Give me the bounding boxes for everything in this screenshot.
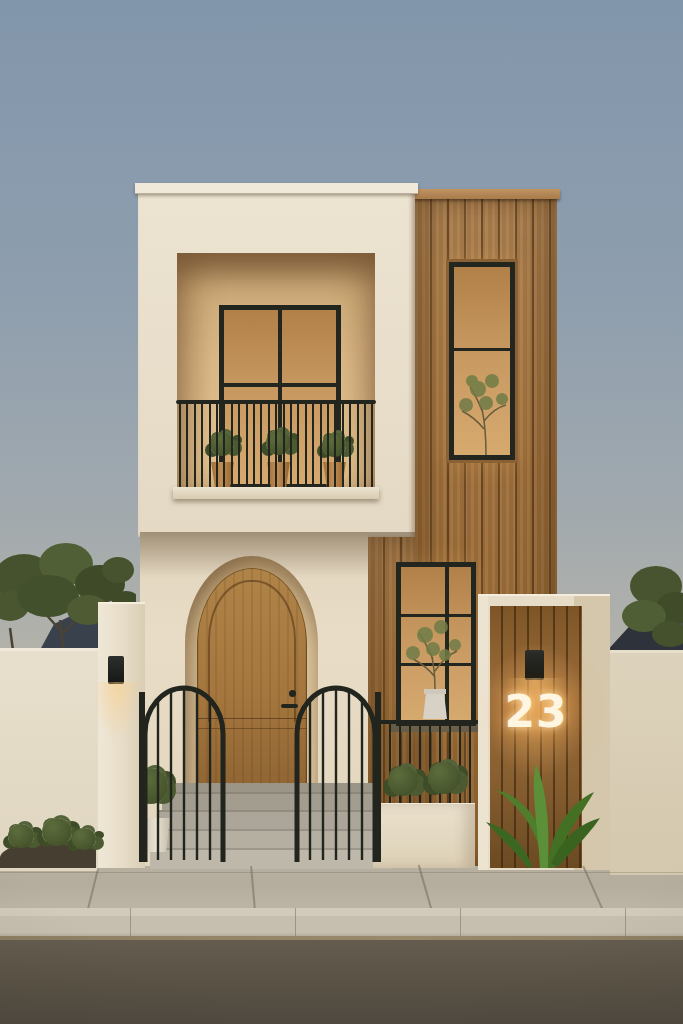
ground-window <box>396 562 476 726</box>
planter-shrub <box>428 762 460 794</box>
curb <box>0 908 683 938</box>
gate-right-bars <box>310 687 362 860</box>
bed-shrub <box>42 818 72 846</box>
balcony-window-mullion-h <box>224 383 336 387</box>
tall-window-surround <box>446 259 518 463</box>
window-railing-bars <box>379 724 477 806</box>
planter-shrub <box>388 766 418 796</box>
sconce-glow <box>92 682 142 744</box>
planter-box <box>373 803 475 868</box>
entry-gates <box>136 678 384 866</box>
parapet-cap <box>135 183 418 194</box>
tall-window-plant <box>456 359 508 455</box>
house-number: 23 <box>478 690 594 734</box>
balcony-railing-top <box>176 400 376 404</box>
wall-sconce <box>525 650 544 680</box>
tall-window-mullion <box>454 348 510 351</box>
pillar-plant <box>480 732 606 868</box>
window-railing-top <box>377 720 479 724</box>
ground-window-plant <box>401 601 461 721</box>
balcony-railing-bars <box>179 404 374 488</box>
street-facade-scene: 23 <box>0 0 683 1024</box>
wall-sconce <box>108 656 124 684</box>
bed-shrub <box>72 828 96 850</box>
sidewalk-joint <box>0 872 683 873</box>
balcony-ledge <box>173 487 379 499</box>
right-boundary-wall <box>610 650 683 875</box>
tall-window <box>449 262 515 460</box>
bed-shrub <box>8 824 34 848</box>
wood-parapet-cap <box>412 189 560 199</box>
tree-right <box>610 560 683 654</box>
road <box>0 940 683 1024</box>
gate-left-bars <box>158 687 210 860</box>
